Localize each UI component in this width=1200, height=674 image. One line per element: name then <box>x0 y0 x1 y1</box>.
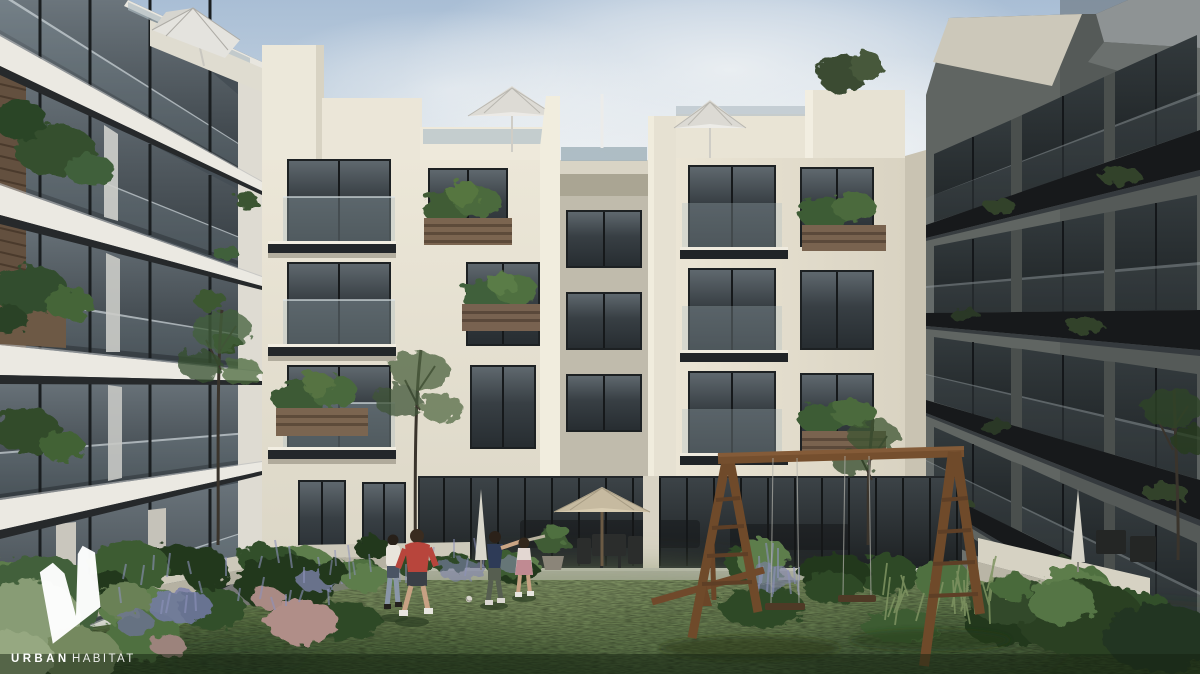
svg-text:HABITAT: HABITAT <box>72 653 136 665</box>
svg-text:URBAN: URBAN <box>11 653 70 665</box>
